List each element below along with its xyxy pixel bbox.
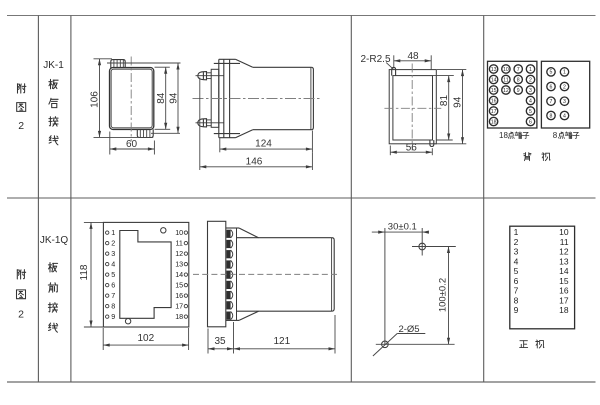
svg-text:12: 12 [559, 247, 569, 257]
svg-text:13: 13 [491, 67, 497, 73]
svg-text:3: 3 [111, 249, 115, 258]
svg-text:30±0.1: 30±0.1 [388, 221, 417, 232]
svg-text:JK-1Q: JK-1Q [40, 235, 69, 246]
svg-text:7: 7 [550, 99, 553, 105]
svg-text:17: 17 [175, 302, 183, 311]
svg-text:106: 106 [90, 91, 101, 108]
svg-text:3: 3 [563, 99, 566, 105]
svg-text:14: 14 [559, 266, 569, 276]
svg-text:2: 2 [18, 309, 24, 321]
svg-text:2: 2 [563, 84, 566, 90]
svg-text:9: 9 [111, 312, 115, 321]
svg-text:94: 94 [452, 96, 463, 108]
svg-text:16: 16 [559, 286, 569, 296]
svg-text:100±0.2: 100±0.2 [438, 278, 449, 312]
svg-text:11: 11 [503, 77, 508, 83]
svg-text:1: 1 [514, 227, 519, 237]
svg-text:18: 18 [499, 131, 508, 140]
svg-text:1: 1 [111, 228, 115, 237]
svg-text:48: 48 [407, 51, 419, 62]
svg-text:94: 94 [168, 92, 179, 104]
svg-text:5: 5 [514, 266, 519, 276]
svg-text:JK-1: JK-1 [43, 60, 64, 71]
svg-text:124: 124 [255, 139, 272, 150]
svg-text:14: 14 [175, 270, 183, 279]
svg-text:9: 9 [517, 88, 520, 94]
svg-text:2: 2 [529, 77, 532, 83]
svg-text:8: 8 [553, 131, 558, 140]
svg-text:4: 4 [514, 256, 519, 266]
svg-text:12: 12 [175, 249, 183, 258]
svg-text:16: 16 [491, 98, 497, 104]
svg-text:2: 2 [111, 239, 115, 248]
svg-text:56: 56 [406, 143, 418, 154]
svg-text:5: 5 [550, 70, 553, 76]
svg-text:10: 10 [503, 67, 509, 73]
svg-text:3: 3 [514, 247, 519, 257]
svg-text:6: 6 [514, 276, 519, 286]
svg-text:146: 146 [246, 156, 263, 167]
svg-text:10: 10 [175, 228, 183, 237]
svg-text:118: 118 [79, 264, 90, 280]
svg-text:18: 18 [559, 305, 569, 315]
svg-text:84: 84 [156, 92, 167, 104]
svg-text:10: 10 [559, 227, 569, 237]
svg-text:11: 11 [175, 239, 182, 248]
svg-text:15: 15 [175, 281, 183, 290]
svg-text:14: 14 [491, 77, 497, 83]
svg-text:16: 16 [175, 291, 183, 300]
svg-text:4: 4 [111, 260, 115, 269]
svg-text:18: 18 [175, 312, 183, 321]
svg-text:2-Ø5: 2-Ø5 [398, 324, 419, 335]
svg-text:5: 5 [111, 270, 115, 279]
svg-text:12: 12 [503, 88, 509, 94]
svg-text:8: 8 [514, 295, 519, 305]
svg-text:7: 7 [517, 67, 520, 73]
svg-text:6: 6 [529, 119, 532, 125]
svg-text:13: 13 [175, 260, 183, 269]
svg-text:5: 5 [529, 109, 532, 115]
svg-text:102: 102 [137, 333, 154, 344]
svg-text:6: 6 [111, 281, 115, 290]
svg-text:35: 35 [214, 336, 226, 347]
svg-text:1: 1 [563, 70, 566, 76]
svg-text:15: 15 [559, 276, 569, 286]
svg-text:4: 4 [563, 113, 566, 119]
svg-text:7: 7 [514, 286, 519, 296]
svg-text:81: 81 [439, 95, 450, 107]
svg-text:1: 1 [529, 67, 532, 73]
svg-text:2: 2 [18, 120, 24, 132]
svg-text:2: 2 [514, 237, 519, 247]
svg-text:6: 6 [550, 84, 553, 90]
svg-text:60: 60 [126, 139, 138, 150]
svg-text:4: 4 [529, 98, 532, 104]
svg-text:8: 8 [550, 113, 553, 119]
svg-text:17: 17 [491, 109, 497, 115]
svg-text:9: 9 [514, 305, 519, 315]
svg-text:11: 11 [560, 237, 569, 247]
svg-text:17: 17 [559, 295, 569, 305]
svg-text:3: 3 [529, 88, 532, 94]
svg-text:8: 8 [111, 302, 115, 311]
svg-text:18: 18 [491, 119, 497, 125]
svg-text:7: 7 [111, 291, 115, 300]
svg-text:15: 15 [491, 88, 497, 94]
svg-text:8: 8 [517, 77, 520, 83]
svg-text:121: 121 [273, 336, 290, 347]
svg-text:13: 13 [559, 256, 569, 266]
